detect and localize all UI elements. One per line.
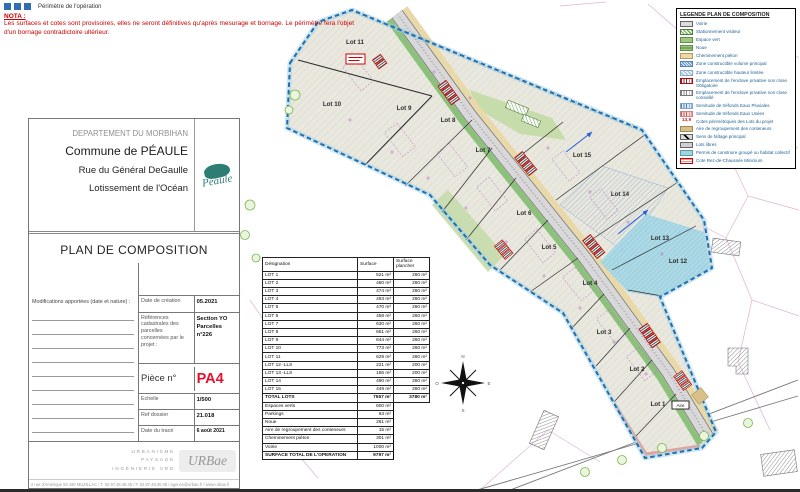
legend-item-label: Servitude de tréfonds Eaux Usées [696,111,764,116]
project-label: Lotissement de l'Océan [33,183,188,194]
agency-line: INGÉNIERIE VRD [112,465,175,473]
modifications-section: Modifications apportées (date et nature)… [29,263,139,441]
date-creation-value: 05.2021 [194,296,239,312]
lot-label: Lot 10 [323,101,342,108]
legend-item: Lots libres [680,142,792,148]
table-row: LOT 8661 m²260 m² [263,328,430,336]
dossier-label: Ref dossier [139,410,194,425]
legend-item-label: Permis de construire groupé ou habitat c… [696,150,790,155]
lot-label: Lot 6 [517,210,532,217]
plan-document-page: Aire N S E O Lot 11Lot 10Lot 9Lot 8Lot 7… [0,0,800,492]
legend-item: Emplacement de l'enclave privative non c… [680,78,792,88]
nota-text: Les surfaces et cotes sont provisoires, … [4,20,354,38]
perimeter-swatch-icon [14,3,21,10]
table-row: LOT 3474 m²260 m² [263,287,430,295]
legend-item: Espace vert [680,37,792,43]
svg-text:O: O [435,381,439,386]
surfaces-table: DésignationSurfaceSurface plancherLOT 15… [262,257,430,460]
lot-label: Lot 4 [583,280,598,287]
legend-item: Voirie [680,21,792,27]
modification-line [32,349,134,363]
legend-item-label: Sens de faîtage principal [696,134,746,139]
legend-item-label: Stationnement visiteur [696,29,741,34]
lot-label: Lot 2 [630,366,645,373]
legend-item-label: Aire de regroupement des conteneurs [696,126,772,131]
legend-item: Cheminement piéton [680,53,792,59]
legend-item: Noue [680,45,792,51]
cadastral-label: Références cadastrales des parcelles con… [139,313,194,364]
legend-item: Stationnement visiteur [680,29,792,35]
agency-line: PAYSAGE [112,456,175,464]
trace-date-label: Date du tracé [139,426,194,441]
legend-item-label: Cheminement piéton [696,53,738,58]
table-row: LOT 4493 m²260 m² [263,296,430,304]
table-row: LOT 13 -LLS186 m²200 m² [263,369,430,377]
north-compass: N S E O [435,354,490,413]
libres-swatch-icon [680,142,693,148]
lot-label: Lot 3 [597,329,612,336]
zhl-swatch-icon [680,70,693,76]
table-row: SURFACE TOTAL DE L'OPERATION9797 m² [263,451,430,459]
trace-date-value: 6 août 2021 [194,426,239,441]
lot-label: Lot 13 [651,235,670,242]
modification-line [32,419,134,433]
vert-swatch-icon [680,37,693,43]
department-label: DEPARTEMENT DU MORBIHAN [33,129,188,138]
aire-swatch-icon [680,126,693,132]
encl-c-swatch-icon [680,90,693,96]
legend-item: Servitude de tréfonds Eaux Usées [680,111,792,117]
title-block: DEPARTEMENT DU MORBIHAN Commune de PÉAUL… [28,118,240,489]
modification-line [32,391,134,405]
legend-item: Permis de construire groupé ou habitat c… [680,150,792,156]
table-row: Espaces verts600 m² [263,402,430,410]
table-header: Surface [358,258,394,272]
modifications-label: Modifications apportées (date et nature)… [32,299,134,305]
legend-item-label: Espace vert [696,37,720,42]
perimeter-label: Périmètre de l'opération [38,4,102,10]
urbae-logo: URBae [179,450,236,472]
peaule-logo: Péaule [194,119,239,231]
nota-title: NOTA : [4,13,360,20]
legend-item: Zone constructible volume principal [680,61,792,67]
legend-item-label: Cotes périmétriques des Lots du projet [696,119,773,124]
legend-item: Sens de faîtage principal [680,134,792,140]
chem-swatch-icon [680,53,693,59]
page-title: PLAN DE COMPOSITION [29,234,239,263]
zvp-swatch-icon [680,61,693,67]
legend-panel: LEGENDE PLAN DE COMPOSITION VoirieStatio… [676,8,796,169]
piece-number: PA4 [194,367,239,391]
legend-item: Emplacement de l'enclave privative non c… [680,90,792,100]
legend-item-label: Lots libres [696,142,717,147]
table-row: LOT 9644 m²260 m² [263,337,430,345]
table-row: LOT 7630 m²260 m² [263,320,430,328]
cotes-swatch-icon: 13,9 [680,119,693,124]
legend-item-label: Voirie [696,21,707,26]
street-label: Rue du Général DeGaulle [33,165,188,176]
legend-title: LEGENDE PLAN DE COMPOSITION [680,12,792,18]
modification-line [32,335,134,349]
sep-swatch-icon [680,103,693,109]
pcg-swatch-icon [680,150,693,156]
lot-label: Lot 14 [611,191,630,198]
table-row: LOT 10773 m²260 m² [263,345,430,353]
scale-label: Echelle [139,394,194,409]
agency-line: URBANISME [112,448,175,456]
lot-label: Lot 1 [651,401,666,408]
modification-line [32,321,134,335]
nota-block: Périmètre de l'opération NOTA : Les surf… [4,3,360,38]
table-row: Parkings63 m² [263,410,430,418]
table-row: DésignationSurfaceSurface plancher [263,258,430,272]
lot-label: Lot 5 [542,244,557,251]
faitage-swatch-icon [680,134,693,140]
table-row: LOT 14490 m²260 m² [263,378,430,386]
lot-label: Lot 15 [573,152,592,159]
table-header: Surface plancher [394,258,430,272]
modification-line [32,377,134,391]
parking-swatch-icon [680,29,693,35]
commune-label: Commune de PÉAULE [33,144,188,158]
cadastral-value: Section YO Parcelles n°226 [194,313,239,364]
table-row: LOT 2460 m²260 m² [263,279,430,287]
voirie-swatch-icon [680,21,693,27]
legend-item-label: Zone constructible volume principal [696,61,767,66]
modification-line [32,307,134,321]
table-row: LOT 1521 m²260 m² [263,271,430,279]
legend-item-label: Emplacement de l'enclave privative non c… [696,78,792,88]
lot-label: Lot 12 [669,258,688,265]
svg-text:Aire: Aire [676,403,684,408]
noue-swatch-icon [680,45,693,51]
modification-line [32,405,134,419]
legend-item-label: Servitude de tréfonds Eaux Pluviales [696,103,770,108]
legend-item: Aire de regroupement des conteneurs [680,126,792,132]
lot-label: Lot 8 [441,117,456,124]
table-row: LOT 11629 m²260 m² [263,353,430,361]
table-row: Voirie1000 m² [263,443,430,451]
legend-item: Cote Rez-de-Chaussée Minimum [680,158,792,164]
rdc-swatch-icon [680,158,693,164]
agency-address: 2 rue d'Amérique 56 190 MUZILLAC / T. 02… [29,479,239,488]
table-header: Désignation [263,258,358,272]
table-row: TOTAL LOTS7557 m²3780 m² [263,394,430,402]
encl-o-swatch-icon [680,78,693,84]
legend-item-label: Cote Rez-de-Chaussée Minimum [696,158,763,163]
legend-item-label: Emplacement de l'enclave privative non c… [696,90,792,100]
meta-grid: Date de création 05.2021 Références cada… [139,263,239,441]
date-creation-label: Date de création [139,296,194,312]
lot-label: Lot 9 [397,105,412,112]
perimeter-swatch-icon [4,3,11,10]
table-row: Aire de regroupement des conteneurs15 m² [263,427,430,435]
dossier-value: 21.018 [194,410,239,425]
legend-item: Zone constructible hauteur limitée [680,70,792,76]
piece-label: Pièce n° [139,371,194,387]
svg-text:S: S [461,408,464,413]
agency-footer: URBANISME PAYSAGE INGÉNIERIE VRD URBae [29,441,239,479]
table-row: LOT 6458 m²260 m² [263,312,430,320]
rdc-cote-box [346,54,365,64]
modification-line [32,363,134,377]
lot-label: Lot 7 [476,147,491,154]
scale-value: 1/500 [194,394,239,409]
legend-item-label: Zone constructible hauteur limitée [696,70,764,75]
table-row: LOT 12 -LLS221 m²200 m² [263,361,430,369]
svg-text:N: N [461,354,464,359]
svg-text:E: E [487,381,490,386]
legend-item-label: Noue [696,45,707,50]
lot-label: Lot 11 [346,39,364,46]
seu-swatch-icon [680,111,693,117]
table-row: Noue261 m² [263,418,430,426]
table-row: Cheminement piéton301 m² [263,435,430,443]
perimeter-swatch-icon [24,3,31,10]
legend-item: 13,9Cotes périmétriques des Lots du proj… [680,119,792,124]
table-row: LOT 5470 m²260 m² [263,304,430,312]
legend-item: Servitude de tréfonds Eaux Pluviales [680,103,792,109]
table-row: LOT 15449 m²260 m² [263,386,430,394]
